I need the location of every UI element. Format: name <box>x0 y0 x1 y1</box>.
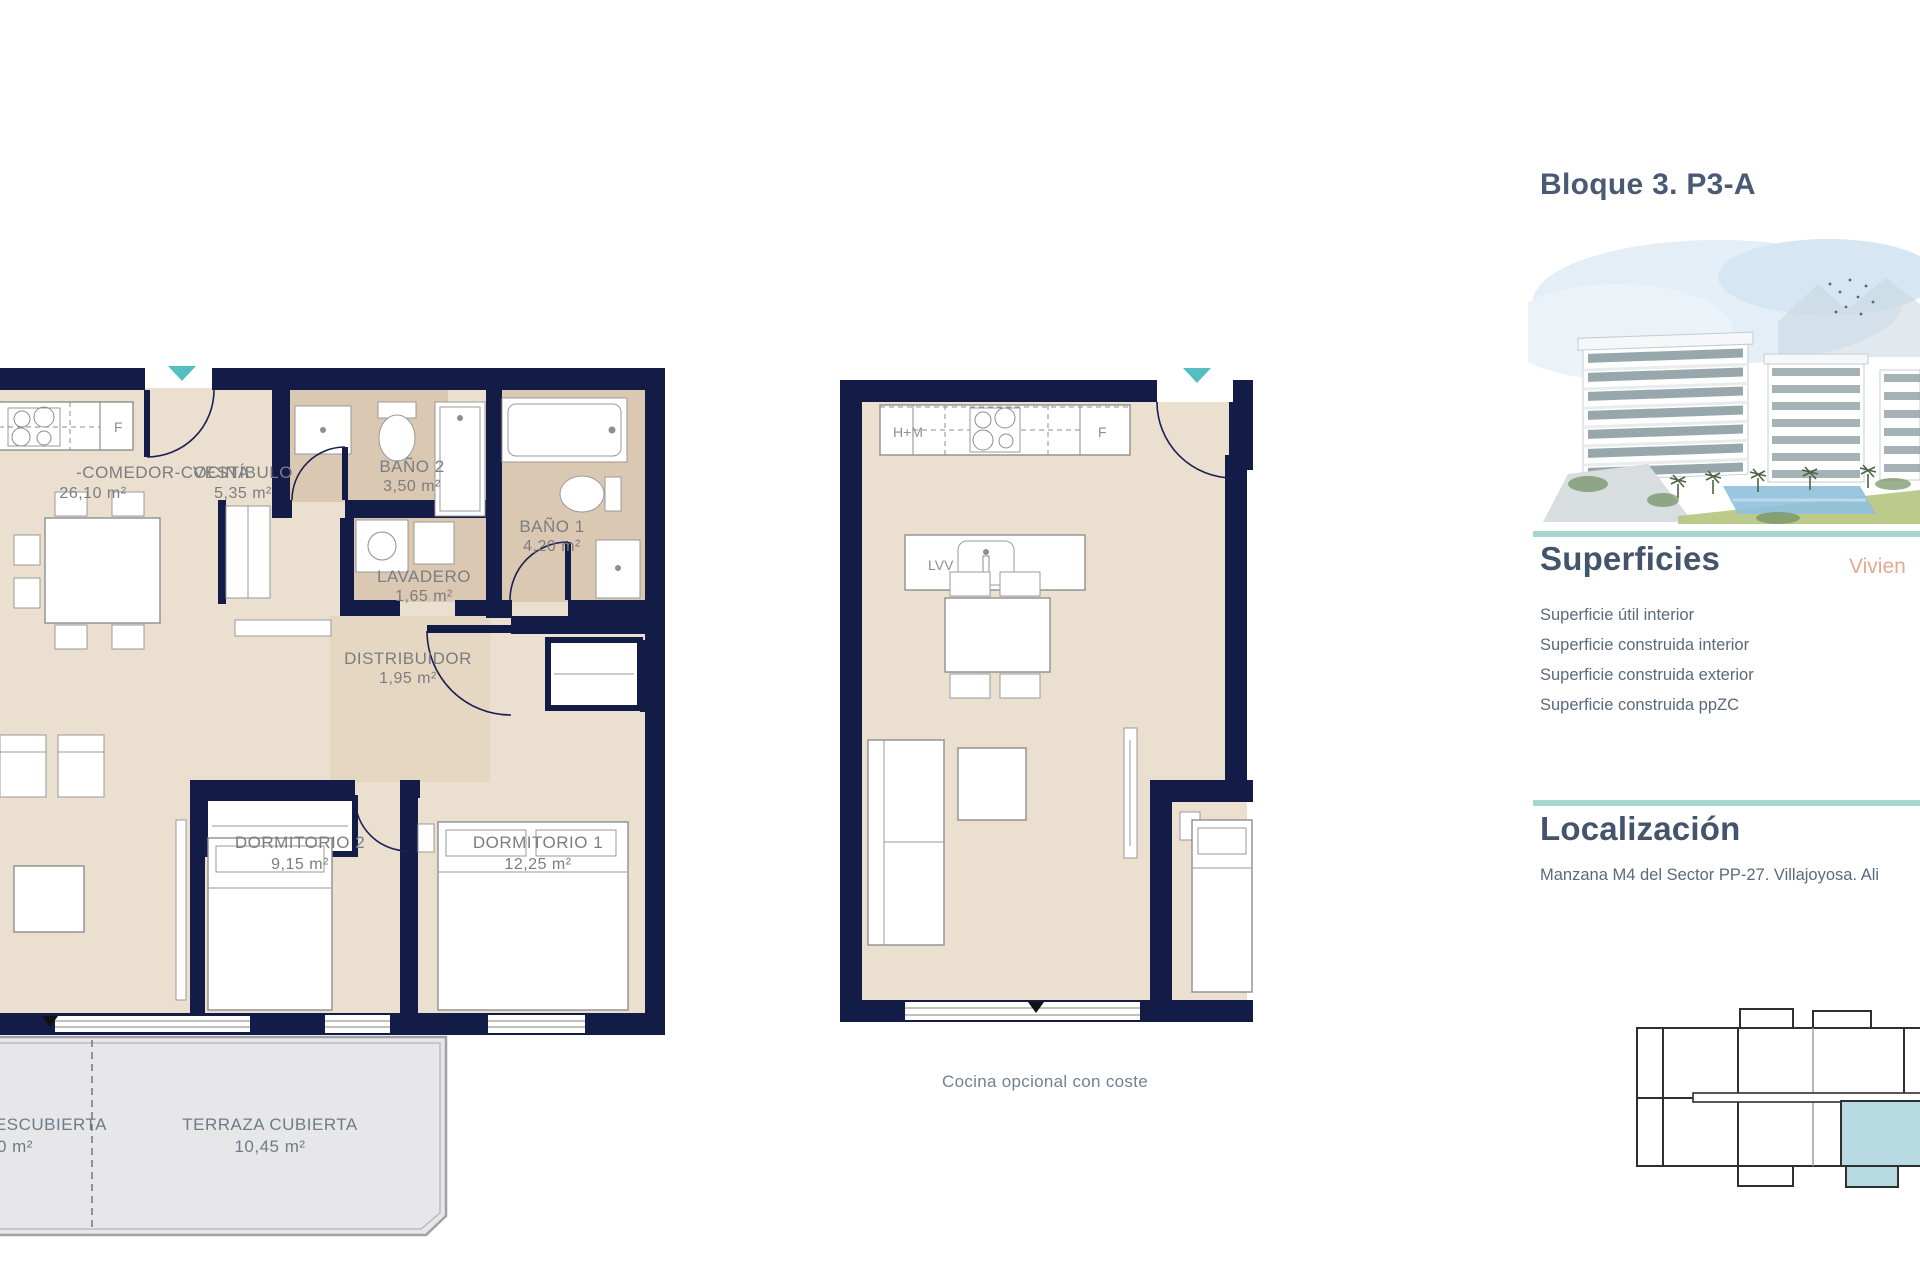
room-area-distribuidor: 1,95 m² <box>379 670 437 687</box>
island-b: LVV <box>905 535 1085 590</box>
terrace: ESCUBIERTA 0 m² TERRAZA CUBIERTA 10,45 m… <box>0 1037 446 1235</box>
armchair <box>0 735 46 797</box>
room-label-dormitorio2: DORMITORIO 2 <box>235 833 365 852</box>
superficies-rows: Superficie útil interior Superficie cons… <box>1540 600 1754 720</box>
kitchen-a: F <box>0 402 133 450</box>
key-plan <box>1630 1006 1920 1198</box>
entry-arrow-a <box>168 366 196 381</box>
floorplan-a: ESCUBIERTA 0 m² TERRAZA CUBIERTA 10,45 m… <box>0 360 700 1280</box>
keyplan-highlighted-unit <box>1841 1101 1920 1166</box>
room-label-dormitorio1: DORMITORIO 1 <box>473 833 603 852</box>
room-label-terraza-descubierta: ESCUBIERTA <box>0 1115 107 1134</box>
room-area-dormitorio1: 12,25 m² <box>504 856 571 873</box>
room-area-bano1: 4,20 m² <box>523 538 581 555</box>
room-label-distribuidor: DISTRIBUIDOR <box>344 649 472 668</box>
room-label-lavadero: LAVADERO <box>377 567 471 586</box>
localizacion-text: Manzana M4 del Sector PP-27. Villajoyosa… <box>1540 866 1879 885</box>
floorplan-sheet: ESCUBIERTA 0 m² TERRAZA CUBIERTA 10,45 m… <box>0 0 1920 1280</box>
superficie-row: Superficie construida ppZC <box>1540 690 1754 720</box>
lavadero-fixtures <box>356 520 454 572</box>
vivienda-column-label: Vivien <box>1849 555 1906 579</box>
room-area-salon: 26,10 m² <box>59 485 126 502</box>
teal-divider <box>1533 531 1920 537</box>
apartment-tower-left <box>1578 332 1753 480</box>
dishwasher-label: LVV <box>928 557 954 573</box>
room-label-bano1: BAÑO 1 <box>519 517 584 536</box>
teal-divider <box>1533 800 1920 806</box>
campana-label: H+M <box>893 424 923 440</box>
superficie-row: Superficie construida exterior <box>1540 660 1754 690</box>
sideboard <box>235 620 331 636</box>
entry-arrow-b <box>1183 368 1211 383</box>
fridge-label-a: F <box>114 419 123 435</box>
superficie-row: Superficie construida interior <box>1540 630 1754 660</box>
apartment-tower-right <box>1880 370 1920 480</box>
room-area-terraza-cubierta: 10,45 m² <box>234 1137 305 1156</box>
armchair <box>58 735 104 797</box>
room-label-terraza-cubierta: TERRAZA CUBIERTA <box>182 1115 358 1134</box>
room-area-vestibulo: 5,35 m² <box>214 485 272 502</box>
room-label-vestibulo: VESTÍBULO <box>193 463 293 482</box>
tv-unit <box>176 820 186 1000</box>
room-area-terraza-descubierta: 0 m² <box>0 1137 33 1156</box>
room-area-dormitorio2: 9,15 m² <box>271 856 329 873</box>
dining-table <box>45 518 160 623</box>
fridge-label-b: F <box>1098 424 1107 440</box>
washer-icon <box>356 520 408 572</box>
room-label-bano2: BAÑO 2 <box>379 457 444 476</box>
building-render-image <box>1528 222 1920 524</box>
vestibule-closet <box>226 506 270 598</box>
coffee-table <box>958 748 1026 820</box>
plan-b-caption: Cocina opcional con coste <box>840 1072 1250 1092</box>
superficie-row: Superficie útil interior <box>1540 600 1754 630</box>
coffee-table <box>14 866 84 932</box>
keyplan-highlighted-terrace <box>1846 1166 1898 1187</box>
windows-b <box>905 1002 1140 1020</box>
floorplan-b: H+M F LVV <box>820 360 1260 1060</box>
toilet-icon <box>605 477 621 511</box>
room-area-bano2: 3,50 m² <box>383 478 441 495</box>
localizacion-heading: Localización <box>1540 810 1740 848</box>
kitchen-b: H+M F <box>880 405 1130 455</box>
apartment-tower-middle <box>1764 354 1868 482</box>
room-area-lavadero: 1,65 m² <box>395 588 453 605</box>
superficies-heading: Superficies <box>1540 540 1720 578</box>
dining-table <box>945 598 1050 672</box>
page-title: Bloque 3. P3-A <box>1540 168 1756 202</box>
